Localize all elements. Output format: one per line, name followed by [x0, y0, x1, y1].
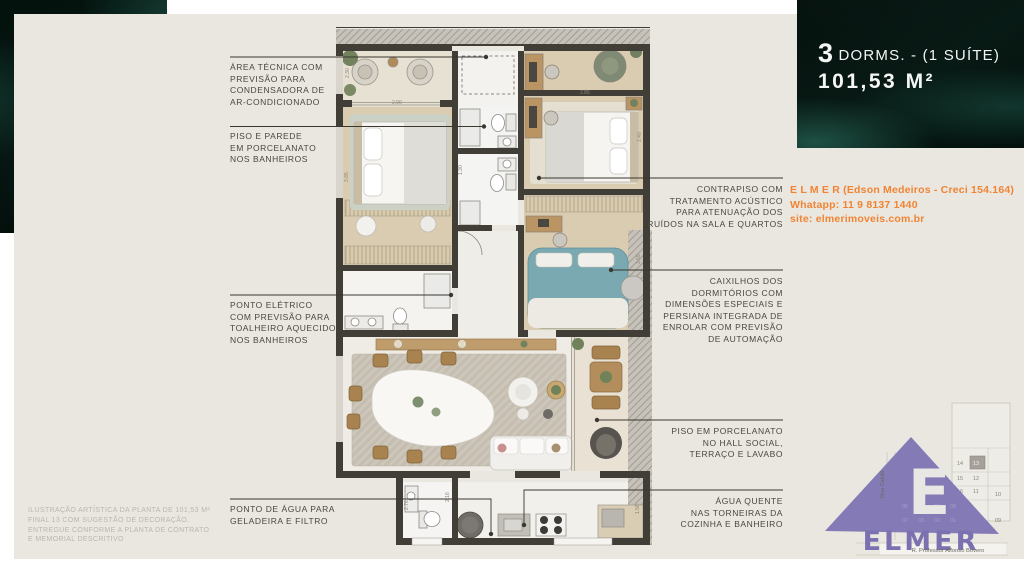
svg-text:12: 12: [973, 476, 979, 482]
brochure-page: 2.30 2.90 2.85 2.40 1.30 3.85 3.55 2.16 …: [0, 0, 1024, 572]
svg-text:13: 13: [973, 461, 979, 467]
broker-name: E L M E R (Edson Medeiros - Creci 154.16…: [790, 183, 1014, 198]
legal-disclaimer: ILUSTRAÇÃO ARTÍSTICA DA PLANTA DE 101,53…: [28, 506, 210, 545]
annotation-ponto-agua: PONTO DE ÁGUA PARA GELADEIRA E FILTRO: [230, 504, 335, 527]
svg-text:2.85: 2.85: [580, 90, 590, 96]
dorms-label: DORMS. - (1 SUÍTE): [838, 47, 1000, 64]
annotation-piso-hall: PISO EM PORCELANATO NO HALL SOCIAL, TERR…: [593, 426, 783, 461]
dorms-count: 3: [818, 38, 834, 68]
street-label-horizontal: R. Professor Alfonso Bovero: [912, 548, 985, 554]
svg-text:3.55: 3.55: [636, 254, 642, 264]
unit-header: 3 DORMS. - (1 SUÍTE) 101,53 M²: [797, 0, 1024, 148]
keyplan: 14 13 15 12 16 11 10 05 04 06 08 07 03 0…: [825, 403, 1010, 557]
svg-text:2.30: 2.30: [345, 68, 351, 78]
svg-text:10: 10: [995, 492, 1001, 498]
header-dorms: 3 DORMS. - (1 SUÍTE): [818, 38, 1000, 69]
svg-text:14: 14: [957, 461, 963, 467]
svg-text:2.40: 2.40: [637, 132, 643, 142]
annotation-agua-quente: ÁGUA QUENTE NAS TORNEIRAS DA COZINHA E B…: [593, 496, 783, 531]
annotation-contrapiso: CONTRAPISO COM TRATAMENTO ACÚSTICO PARA …: [593, 184, 783, 230]
annotation-caixilhos: CAIXILHOS DOS DORMITÓRIOS COM DIMENSÕES …: [593, 276, 783, 346]
broker-whatsapp: Whatapp: 11 9 8137 1440: [790, 198, 1014, 213]
living-room-furniture: [347, 339, 572, 470]
svg-text:2.90: 2.90: [392, 100, 402, 106]
svg-text:11: 11: [973, 489, 979, 495]
logo-letter: E: [908, 456, 950, 529]
broker-contact: E L M E R (Edson Medeiros - Creci 154.16…: [790, 183, 1014, 227]
broker-site: site: elmerimoveis.com.br: [790, 212, 1014, 227]
street-label-vertical: Rua Caiubi: [880, 471, 886, 498]
annotation-piso-porcelanato-banheiros: PISO E PAREDE EM PORCELANATO NOS BANHEIR…: [230, 131, 316, 166]
svg-text:1.30: 1.30: [458, 165, 464, 175]
svg-text:2.76: 2.76: [404, 500, 410, 510]
bedroom2-furniture: [525, 97, 642, 184]
svg-text:01: 01: [950, 518, 956, 524]
svg-text:2.16: 2.16: [445, 492, 451, 502]
header-area: 101,53 M²: [818, 70, 935, 94]
annotation-ponto-eletrico: PONTO ELÉTRICO COM PREVISÃO PARA TOALHEI…: [230, 300, 336, 346]
annotation-area-tecnica: ÁREA TÉCNICA COM PREVISÃO PARA CONDENSAD…: [230, 62, 325, 108]
svg-text:09: 09: [995, 518, 1001, 524]
svg-text:15: 15: [957, 476, 963, 482]
svg-text:3.85: 3.85: [344, 172, 350, 182]
svg-text:08: 08: [950, 504, 956, 510]
